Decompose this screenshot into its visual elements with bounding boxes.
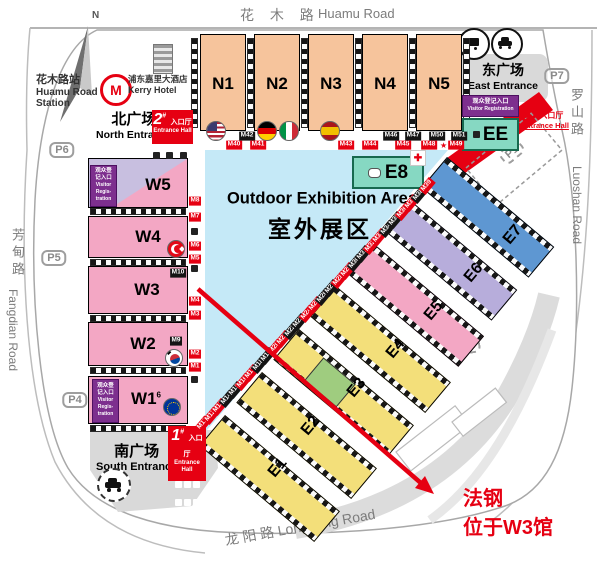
flag-eu-icon [163, 398, 181, 416]
hall-w2-label: W2 [130, 334, 156, 354]
gate-m46: M46 [383, 132, 399, 141]
road-huamu-en: Huamu Road [318, 6, 395, 21]
gate-m41: M41 [250, 141, 266, 150]
gate-m45: M45 [395, 141, 411, 150]
gate-m49: M49 [448, 141, 464, 150]
visitor-registration-w1: 观众登记入口 Visitor Regis- tration [92, 379, 119, 423]
hall-w5-label: W5 [145, 175, 171, 195]
facility-icon [184, 481, 191, 488]
gate-m42: M42 [239, 132, 255, 141]
entrance1-hall: 1# 入口厅 Entrance Hall [168, 426, 206, 481]
gate-m1: M1 [189, 363, 201, 372]
facility-icon [175, 499, 182, 506]
station-en2: Station [36, 98, 98, 109]
visitor-registration-w5: 观众登记入口 Visitor Regis- tration [90, 165, 117, 207]
car-icon [491, 28, 523, 60]
facility-icon [166, 152, 173, 159]
station-en1: Huamu Road [36, 87, 98, 98]
gate-m4: M4 [189, 297, 201, 306]
facility-icon [153, 152, 160, 159]
gate-strip [90, 315, 186, 322]
parking-p7: P7 [544, 68, 569, 84]
hall-e8-label: E8 [385, 162, 408, 184]
gate-strip [247, 38, 254, 128]
parking-p4: P4 [62, 392, 87, 408]
east-plaza-label: 东广场 East Entrance [460, 60, 546, 92]
flag-spain-icon [320, 121, 340, 141]
station-zh: 花木路站 [36, 71, 98, 87]
east-plaza-en: East Entrance [460, 80, 546, 92]
gate-strip [301, 38, 308, 128]
hall-n4-label: N4 [374, 74, 396, 94]
facility-icon [473, 131, 480, 138]
hotel-building-icon [153, 44, 173, 74]
gate-strip [409, 38, 416, 128]
gate-m43: M43 [338, 141, 354, 150]
annotation-text: 法钢 位于W3馆 [463, 485, 553, 543]
facility-icon [180, 152, 187, 159]
gate-m40: M40 [226, 141, 242, 150]
road-huamu-zh: 花 木 路 [240, 5, 320, 25]
facility-icon [193, 481, 200, 488]
hall-w1-label: W16 [131, 389, 161, 409]
red-cross-icon: ✚ [410, 150, 426, 166]
gate-m7: M7 [189, 213, 201, 222]
star-marker: ★ [440, 141, 447, 150]
gate-m50: M50 [429, 132, 445, 141]
hall-n5-label: N5 [428, 74, 450, 94]
gate-m6: M6 [189, 242, 201, 251]
gate-m51: M51 [451, 132, 467, 141]
flag-turkey-icon [167, 240, 185, 258]
gate-m10: M10 [170, 269, 186, 278]
hall-n3-label: N3 [320, 74, 342, 94]
facility-icon [191, 228, 198, 235]
hall-n2-label: N2 [266, 74, 288, 94]
metro-logo-letter: M [110, 82, 122, 98]
gate-m2: M2 [189, 350, 201, 359]
visitor-registration-east: 观众登记入口 Visitor Registration [462, 95, 519, 117]
hotel-en: Kerry Hotel [128, 85, 188, 95]
flag-usa-icon [206, 121, 226, 141]
gate-strip [90, 208, 186, 215]
gate-m8: M8 [189, 197, 201, 206]
gate-m48: M48 [421, 141, 437, 150]
facility-icon [368, 168, 381, 178]
facility-icon [191, 376, 198, 383]
road-luoshan-zh: 罗山路 [567, 88, 586, 139]
east-plaza-zh: 东广场 [460, 60, 546, 80]
road-luoshan-en: Luoshan Road [570, 166, 584, 244]
annotation-line2: 位于W3馆 [463, 514, 553, 543]
facility-icon [184, 499, 191, 506]
flag-italy-icon [279, 121, 299, 141]
hotel-label: 浦东嘉里大酒店 Kerry Hotel [128, 73, 188, 95]
gate-m3: M3 [189, 311, 201, 320]
outdoor-area-title-en: Outdoor Exhibition Area [227, 190, 417, 209]
taxi-icon [97, 468, 131, 502]
parking-p5: P5 [41, 250, 66, 266]
parking-p6: P6 [49, 142, 74, 158]
hall-w4-label: W4 [135, 227, 161, 247]
hall-n1-label: N1 [212, 74, 234, 94]
facility-icons-north [153, 146, 187, 164]
flag-germany-icon [257, 121, 277, 141]
road-fangdian-en: Fangdian Road [6, 289, 20, 371]
facility-icons-south [168, 476, 206, 512]
facility-icon [191, 265, 198, 272]
gate-m47: M47 [405, 132, 421, 141]
hall-ee: EE [462, 118, 519, 151]
gate-strip [355, 38, 362, 128]
gate-m5: M5 [189, 255, 201, 264]
hall-w3-label: W3 [134, 280, 160, 300]
gate-strip [90, 367, 186, 374]
gate-strip [90, 259, 186, 266]
entrance2-hall: 2# 入口厅 Entrance Hall [152, 110, 193, 144]
gate-m9: M9 [170, 337, 182, 346]
hall-w1-footnote: 6 [157, 390, 161, 399]
flag-korea-icon [165, 349, 183, 367]
compass-n-label: N [92, 10, 99, 21]
entrance3-label: 3# 入口厅 Entrance Hall [521, 104, 569, 130]
exhibition-map: 花 木 路 Huamu Road 罗山路 Luoshan Road 芳甸路 Fa… [0, 0, 600, 564]
annotation-line1: 法钢 [463, 485, 553, 514]
station-label: 花木路站 Huamu Road Station [36, 71, 98, 109]
facility-icon [193, 499, 200, 506]
road-fangdian-zh: 芳甸路 [8, 228, 27, 279]
hall-ee-label: EE [483, 124, 508, 146]
outdoor-area-title-zh: 室外展区 [268, 210, 372, 244]
gate-m44: M44 [362, 141, 378, 150]
facility-icon [175, 481, 182, 488]
hotel-zh: 浦东嘉里大酒店 [128, 73, 188, 85]
south-plaza-zh: 南广场 [96, 440, 177, 461]
